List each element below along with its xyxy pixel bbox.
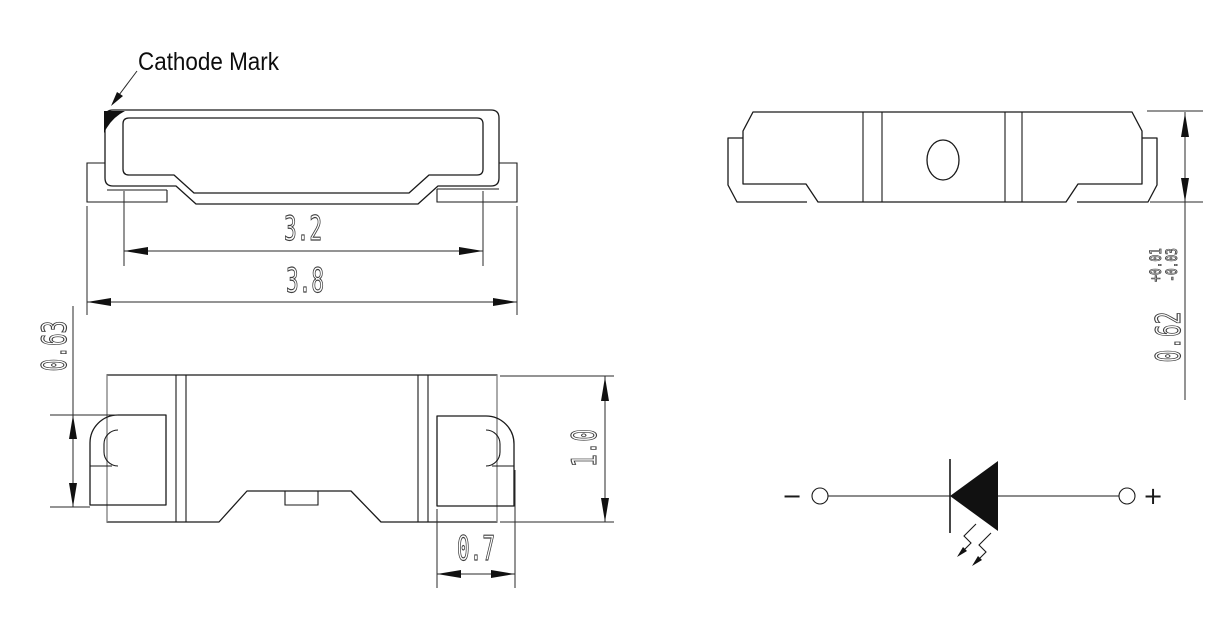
- light-emission-arrows: [957, 524, 991, 566]
- dim-body-height-label: 1.0: [565, 429, 605, 467]
- side-left-lead: [728, 138, 807, 202]
- dim-thickness-tol-minus: -0.03: [1163, 248, 1182, 282]
- cathode-terminal-circle: [812, 488, 828, 504]
- cathode-mark: [104, 111, 125, 133]
- right-terminal: [437, 163, 517, 202]
- dimension-lead-height: 0.63: [35, 306, 118, 507]
- reflector-window-outline: [123, 118, 483, 193]
- mold-split-lines: [176, 375, 428, 522]
- dim-overall-width-label: 3.8: [286, 261, 324, 301]
- diode-triangle: [950, 461, 998, 531]
- dim-lead-width-label: 0.7: [457, 529, 495, 569]
- side-right-lead: [1077, 138, 1157, 202]
- left-terminal: [87, 163, 167, 202]
- dimension-inner-width: 3.2: [124, 191, 483, 266]
- dim-thickness-label: 0.62: [1149, 312, 1189, 363]
- anode-terminal-circle: [1119, 488, 1135, 504]
- cathode-mark-label: Cathode Mark: [138, 48, 279, 76]
- center-tab: [285, 491, 318, 505]
- front-right-terminal: [437, 416, 514, 506]
- dimension-body-height: 1.0: [500, 376, 614, 522]
- top-view: Cathode Mark 3.2 3.8: [87, 48, 517, 315]
- center-hole: [927, 140, 959, 180]
- dimension-thickness: 0.62 +0.01 -0.03: [1147, 111, 1203, 400]
- dim-inner-width-label: 3.2: [284, 209, 322, 249]
- side-view: 0.62 +0.01 -0.03: [728, 111, 1203, 400]
- side-body-outline: [743, 112, 1142, 202]
- front-left-terminal: [90, 415, 166, 505]
- dim-lead-height-label: 0.63: [35, 321, 75, 372]
- led-schematic-symbol: − +: [782, 459, 1163, 566]
- minus-terminal-label: −: [782, 482, 802, 510]
- cathode-leader-arrow: [111, 71, 137, 106]
- dimension-lead-width: 0.7: [437, 470, 515, 588]
- plus-terminal-label: +: [1143, 482, 1163, 510]
- technical-drawing-page: Cathode Mark 3.2 3.8: [0, 0, 1217, 626]
- led-package-drawing: Cathode Mark 3.2 3.8: [0, 0, 1217, 626]
- side-split-lines: [863, 112, 1022, 202]
- front-view: 0.63 1.0 0.7: [35, 306, 614, 588]
